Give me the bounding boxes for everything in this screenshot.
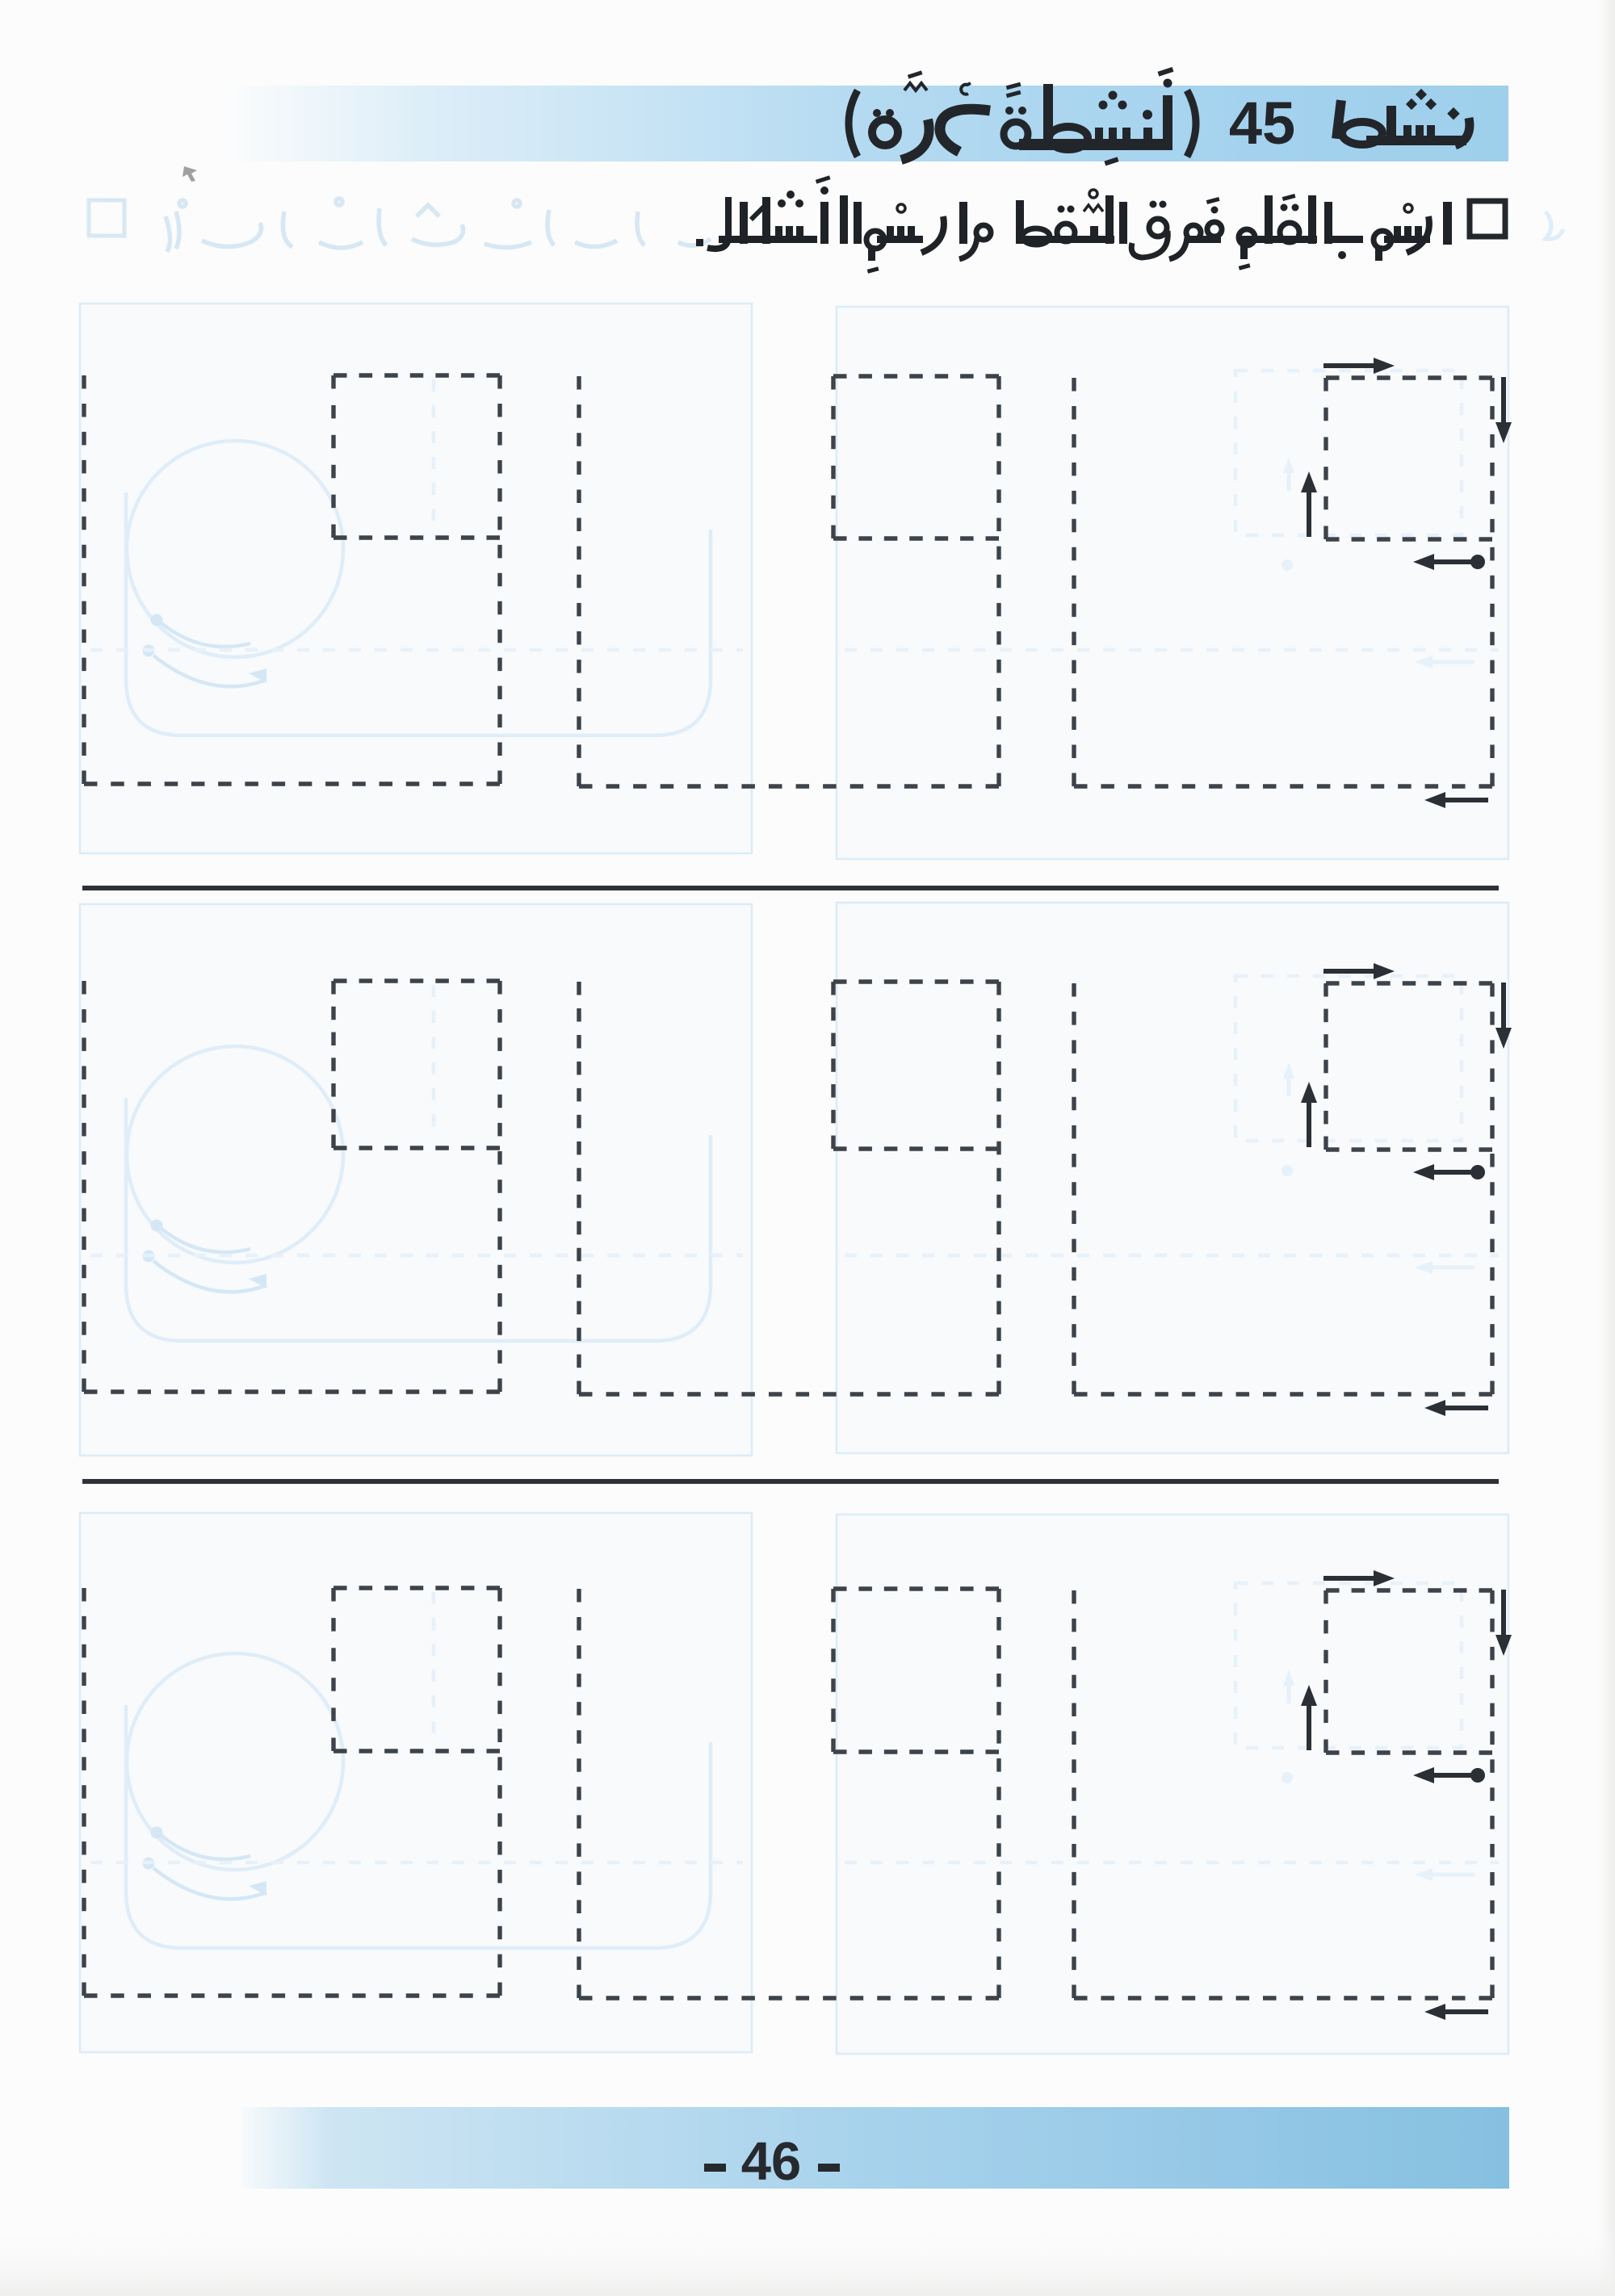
svg-text:45: 45 bbox=[1229, 90, 1295, 157]
svg-text:46: 46 bbox=[741, 2131, 802, 2192]
